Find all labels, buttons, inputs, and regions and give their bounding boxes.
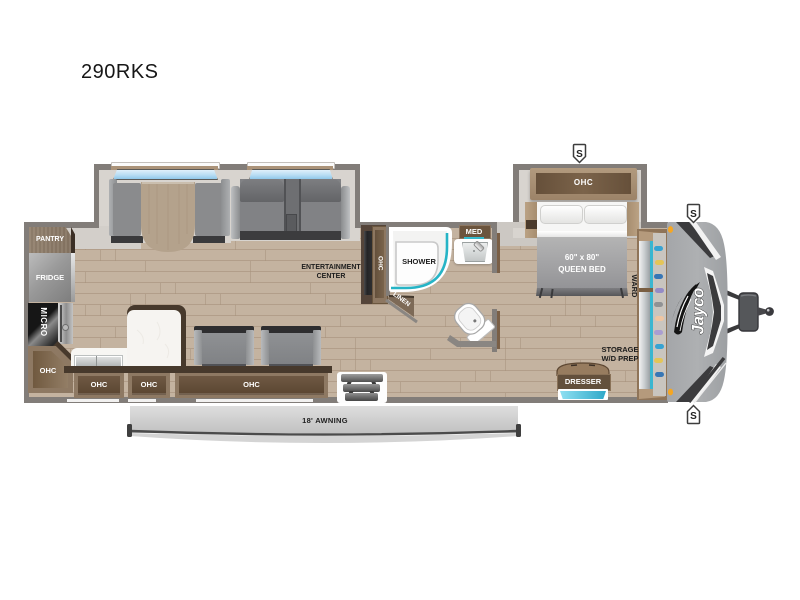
svg-text:S: S bbox=[690, 209, 697, 220]
svg-text:Jayco: Jayco bbox=[689, 288, 707, 335]
svg-text:S: S bbox=[576, 149, 583, 160]
svg-text:S: S bbox=[690, 411, 697, 422]
